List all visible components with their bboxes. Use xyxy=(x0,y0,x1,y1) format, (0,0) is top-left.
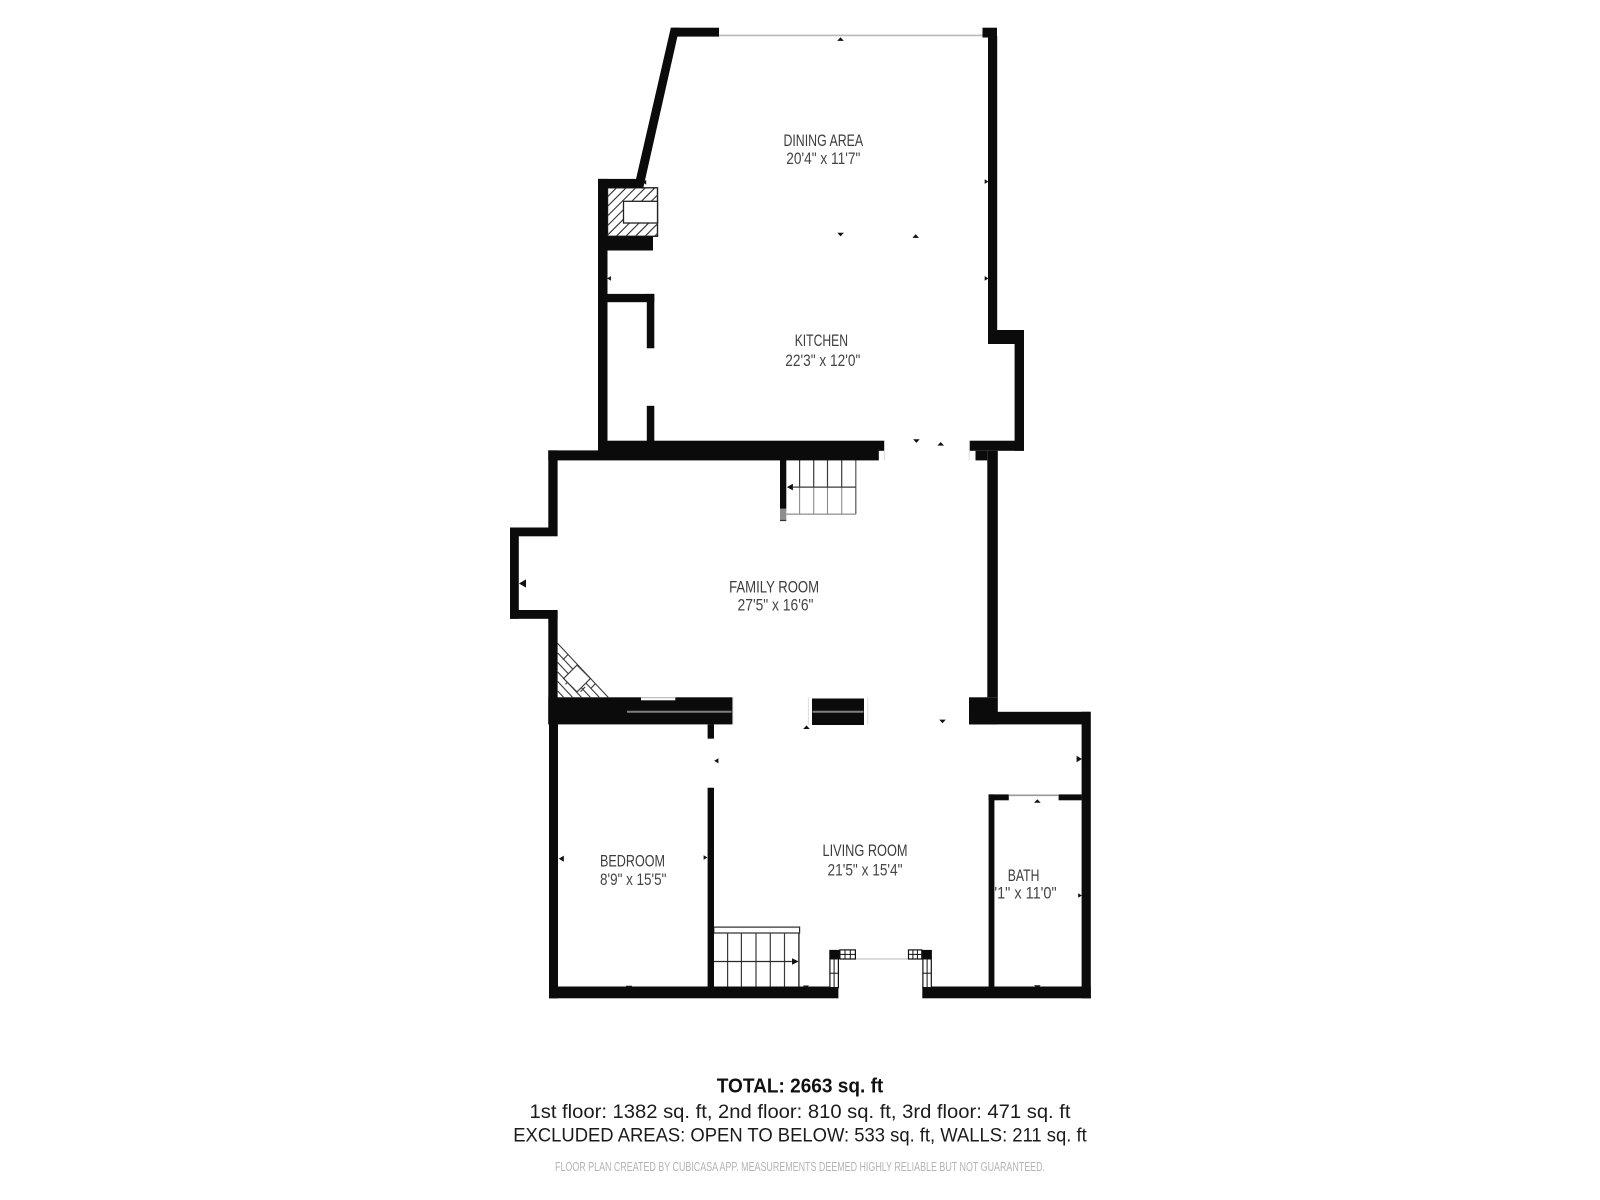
svg-text:21'5" x 15'4": 21'5" x 15'4" xyxy=(828,862,903,880)
svg-text:EXCLUDED AREAS: OPEN TO BELOW:: EXCLUDED AREAS: OPEN TO BELOW: 533 sq. f… xyxy=(513,1124,1087,1146)
svg-text:'1" x 11'0": '1" x 11'0" xyxy=(994,885,1057,903)
svg-text:TOTAL: 2663 sq. ft: TOTAL: 2663 sq. ft xyxy=(717,1076,884,1098)
svg-text:8'9" x 15'5": 8'9" x 15'5" xyxy=(600,871,667,889)
svg-text:27'5" x 16'6": 27'5" x 16'6" xyxy=(738,596,814,614)
svg-text:1st floor: 1382 sq. ft, 2nd fl: 1st floor: 1382 sq. ft, 2nd floor: 810 s… xyxy=(530,1101,1072,1123)
svg-text:LIVING ROOM: LIVING ROOM xyxy=(823,842,908,860)
svg-text:22'3" x 12'0": 22'3" x 12'0" xyxy=(785,352,860,370)
svg-text:20'4" x 11'7": 20'4" x 11'7" xyxy=(786,150,860,168)
svg-text:FAMILY ROOM: FAMILY ROOM xyxy=(729,579,819,597)
svg-text:BEDROOM: BEDROOM xyxy=(600,852,665,870)
svg-text:FLOOR PLAN CREATED BY CUBICASA: FLOOR PLAN CREATED BY CUBICASA APP. MEAS… xyxy=(555,1159,1045,1174)
svg-text:DINING AREA: DINING AREA xyxy=(783,132,863,150)
svg-text:KITCHEN: KITCHEN xyxy=(795,332,848,350)
svg-text:BATH: BATH xyxy=(1008,867,1040,885)
